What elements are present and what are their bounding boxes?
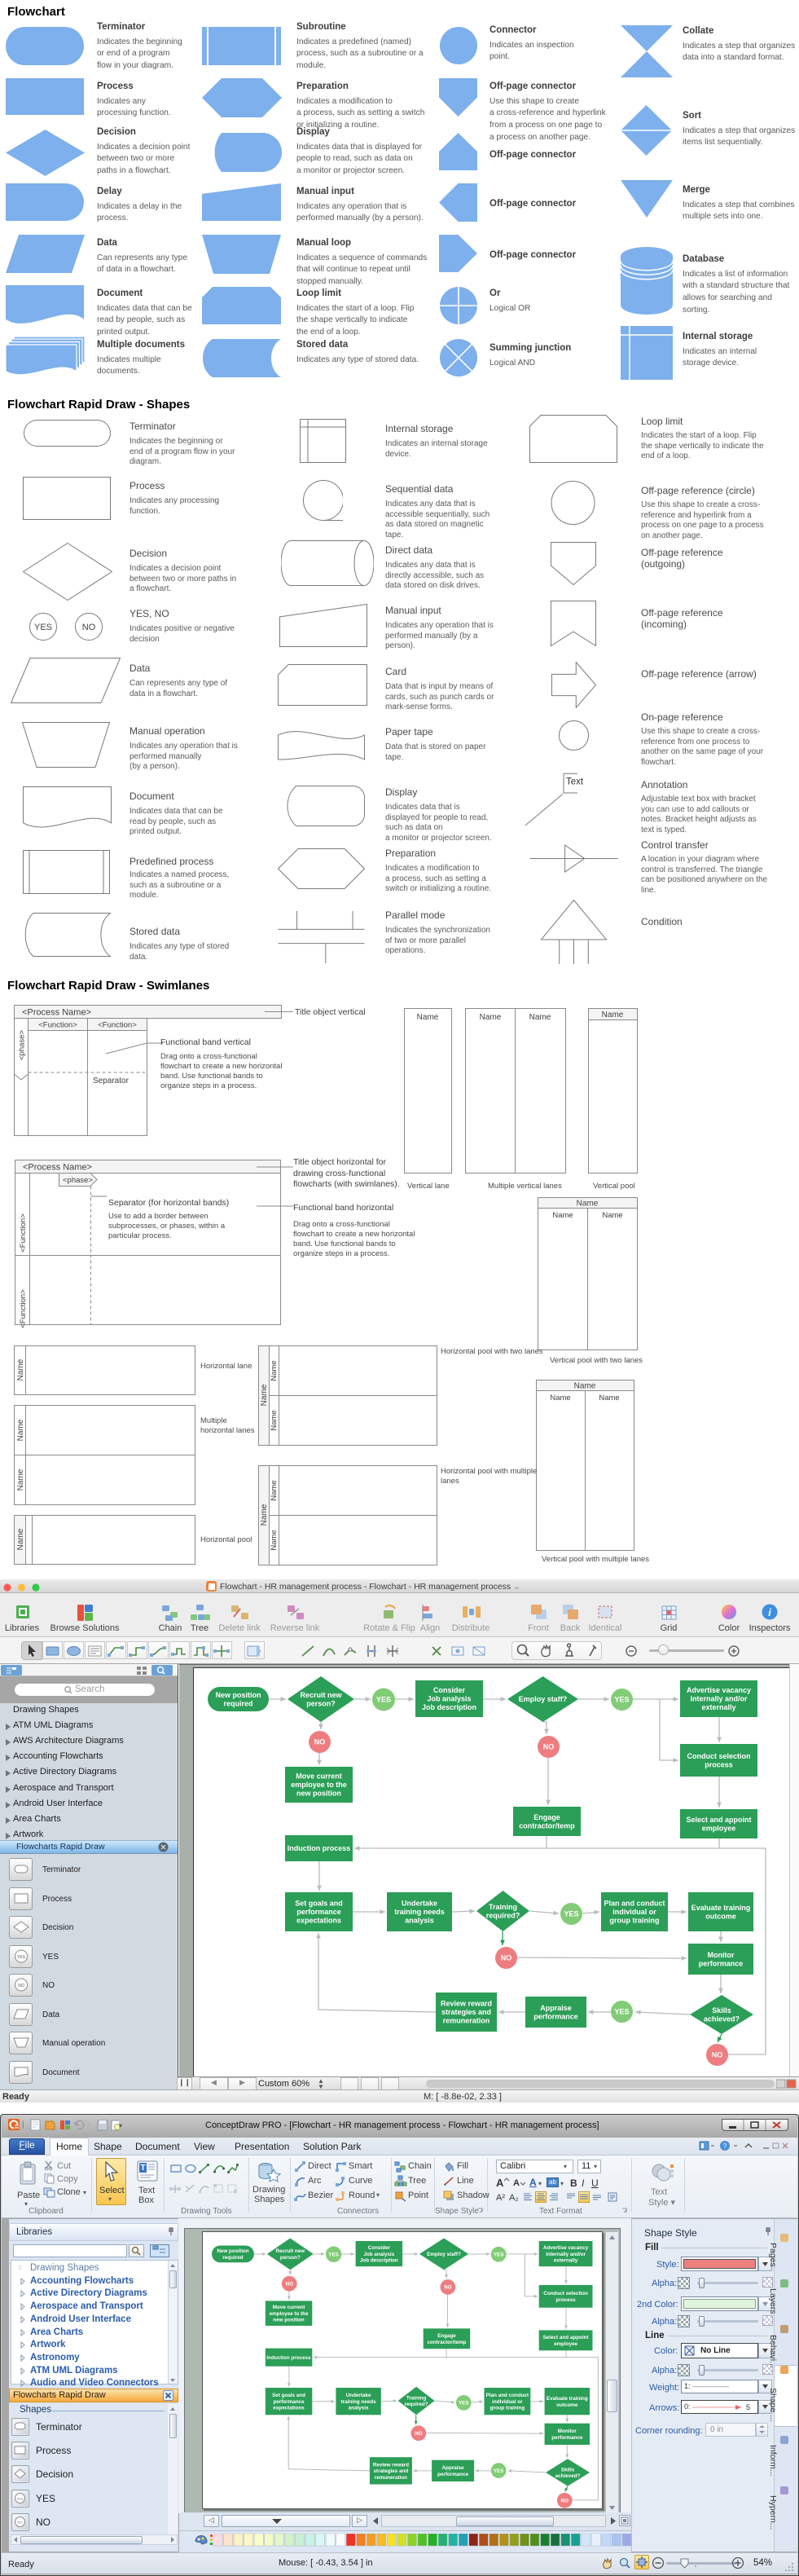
svg-text:Name: Name [480, 1013, 502, 1022]
svg-text:process: process [556, 2297, 577, 2303]
svg-text:New position: New position [217, 2248, 248, 2254]
svg-text:<Process Name>: <Process Name> [22, 1008, 91, 1018]
svg-text:training needs: training needs [341, 2399, 377, 2405]
svg-text:contractor/temp: contractor/temp [519, 1821, 575, 1830]
svg-text:strategies and: strategies and [441, 2008, 491, 2016]
svg-text:person?: person? [280, 2255, 301, 2261]
svg-text:Move current: Move current [296, 1772, 342, 1781]
svg-text:NO: NO [314, 1738, 326, 1746]
svg-text:training needs: training needs [394, 1908, 445, 1916]
svg-text:NO: NO [712, 2051, 723, 2059]
svg-text:remuneration: remuneration [375, 2475, 407, 2481]
svg-text:Engage: Engage [437, 2333, 456, 2339]
svg-text:T: T [140, 2164, 145, 2173]
svg-text:expectations: expectations [273, 2406, 305, 2411]
svg-text:performance: performance [437, 2472, 469, 2477]
svg-text:Recruit new: Recruit new [275, 2248, 305, 2254]
svg-text:Job analysis: Job analysis [427, 1695, 471, 1703]
svg-text:NO: NO [444, 2285, 452, 2291]
svg-text:YES: YES [17, 1955, 26, 1960]
svg-text:Plan and conduct: Plan and conduct [486, 2393, 529, 2398]
svg-text:Evaluate training: Evaluate training [691, 1904, 751, 1912]
svg-text:Job description: Job description [360, 2258, 398, 2264]
svg-text:YES: YES [494, 2468, 504, 2474]
svg-text:Name: Name [260, 1384, 269, 1406]
svg-text:contractor/temp: contractor/temp [427, 2340, 466, 2345]
svg-text:Plan and conduct: Plan and conduct [604, 1900, 665, 1908]
svg-text:Name: Name [602, 1211, 622, 1220]
svg-text:remuneration: remuneration [443, 2017, 490, 2025]
svg-text:Consider: Consider [433, 1686, 466, 1694]
svg-text:<phase>: <phase> [18, 1030, 27, 1060]
svg-text:Name: Name [16, 1419, 25, 1441]
svg-text:externally: externally [701, 1703, 735, 1711]
svg-text:Name: Name [16, 1528, 25, 1550]
svg-text:individual or: individual or [492, 2399, 523, 2405]
svg-text:Induction process: Induction process [288, 1844, 351, 1852]
svg-text:<Function>: <Function> [19, 1213, 28, 1253]
svg-text:Advertise vacancy: Advertise vacancy [543, 2245, 589, 2251]
svg-text:achieved?: achieved? [704, 2015, 740, 2023]
svg-text:Advertise vacancy: Advertise vacancy [687, 1686, 751, 1694]
svg-text:externally: externally [554, 2258, 578, 2264]
svg-text:Skills: Skills [712, 2006, 731, 2015]
svg-text:YES: YES [459, 2401, 469, 2406]
svg-text:Monitor: Monitor [708, 1951, 735, 1959]
svg-text:YES: YES [16, 2496, 23, 2500]
svg-text:Name: Name [574, 1382, 596, 1391]
svg-text:employee: employee [554, 2341, 578, 2347]
svg-text:YES: YES [328, 2252, 339, 2258]
svg-text:Name: Name [16, 1358, 25, 1380]
svg-text:Skills: Skills [561, 2467, 575, 2473]
svg-text:NO: NO [543, 1743, 555, 1751]
svg-text:Select and appoint: Select and appoint [543, 2335, 590, 2340]
svg-text:New position: New position [216, 1691, 261, 1699]
svg-text:employee to the: employee to the [270, 2311, 309, 2317]
svg-text:required?: required? [405, 2402, 428, 2407]
svg-text:Undertake: Undertake [402, 1900, 437, 1908]
svg-text:Set goals and: Set goals and [295, 1900, 343, 1908]
svg-text:Name: Name [599, 1394, 619, 1402]
svg-text:Employ staff?: Employ staff? [427, 2252, 461, 2257]
svg-text:?: ? [723, 2142, 727, 2150]
svg-text:Induction process: Induction process [266, 2355, 311, 2361]
svg-text:YES: YES [34, 623, 52, 632]
svg-text:Name: Name [270, 1360, 279, 1380]
svg-text:YES: YES [614, 1696, 629, 1704]
svg-text:performance: performance [296, 1908, 341, 1916]
svg-text:Employ staff?: Employ staff? [519, 1695, 568, 1703]
svg-text:Review reward: Review reward [441, 2000, 492, 2008]
svg-text:group training: group training [490, 2406, 525, 2411]
svg-text:NO: NO [82, 623, 96, 632]
svg-text:Name: Name [270, 1480, 279, 1500]
svg-text:Job analysis: Job analysis [363, 2252, 394, 2257]
svg-text:Training: Training [406, 2395, 427, 2401]
svg-text:outcome: outcome [556, 2402, 578, 2408]
svg-text:Name: Name [550, 1394, 570, 1402]
svg-text:Text: Text [566, 777, 584, 787]
svg-text:Select and appoint: Select and appoint [686, 1816, 751, 1824]
svg-text:Appraise: Appraise [442, 2465, 464, 2471]
svg-text:YES: YES [614, 2008, 629, 2016]
svg-text:YES: YES [564, 1910, 578, 1918]
svg-text:achieved?: achieved? [555, 2473, 581, 2479]
svg-text:Name: Name [529, 1013, 551, 1022]
svg-text:employee: employee [702, 1824, 736, 1832]
svg-text:required: required [222, 2255, 243, 2261]
svg-text:Name: Name [270, 1530, 279, 1550]
svg-text:performance: performance [699, 1959, 744, 1967]
svg-text:NO: NO [501, 1954, 512, 1962]
svg-text:expectations: expectations [296, 1917, 341, 1925]
svg-text:Consider: Consider [368, 2245, 391, 2251]
svg-text:person?: person? [306, 1699, 336, 1707]
svg-text:<Function>: <Function> [19, 1289, 28, 1328]
svg-text:5: 5 [746, 2403, 750, 2411]
svg-text:new position: new position [273, 2318, 305, 2323]
svg-text:employee to the: employee to the [291, 1781, 347, 1789]
svg-text:performance: performance [533, 2012, 578, 2020]
svg-text:<Function>: <Function> [98, 1021, 137, 1030]
svg-text:internally and/or: internally and/or [546, 2252, 586, 2257]
svg-text:Evaluate training: Evaluate training [547, 2396, 588, 2402]
svg-text:Engage: Engage [533, 1813, 560, 1821]
svg-text:Name: Name [16, 1469, 25, 1491]
svg-text:Monitor: Monitor [558, 2428, 577, 2434]
svg-text:NO: NO [18, 2520, 23, 2524]
svg-text:strategies and: strategies and [374, 2468, 409, 2474]
svg-text:Name: Name [270, 1410, 279, 1430]
svg-text:Conduct selection: Conduct selection [543, 2291, 588, 2296]
svg-text:YES: YES [376, 1696, 391, 1704]
svg-text:i: i [768, 1606, 771, 1618]
svg-text:Job description: Job description [422, 1703, 476, 1711]
svg-text:Name: Name [602, 1011, 624, 1019]
svg-text:outcome: outcome [705, 1912, 736, 1920]
svg-text:performance: performance [273, 2399, 305, 2405]
svg-text:Name: Name [577, 1200, 599, 1209]
svg-text:Appraise: Appraise [540, 2004, 572, 2012]
svg-text:Name: Name [552, 1211, 573, 1220]
svg-text:Undertake: Undertake [346, 2393, 371, 2398]
svg-text:analysis: analysis [349, 2406, 369, 2411]
svg-text:<phase>: <phase> [63, 1176, 93, 1185]
svg-text:new position: new position [296, 1790, 341, 1798]
svg-text:process: process [705, 1760, 733, 1768]
svg-text:analysis: analysis [405, 1917, 434, 1925]
svg-text:<Function>: <Function> [38, 1021, 77, 1030]
svg-text:group training: group training [610, 1917, 660, 1925]
svg-text:Review reward: Review reward [373, 2462, 409, 2468]
svg-text:NO: NO [561, 2499, 569, 2504]
svg-text:YES: YES [494, 2252, 504, 2258]
svg-text:Separator: Separator [93, 1077, 130, 1085]
svg-text:NO: NO [286, 2282, 294, 2288]
svg-text:Name: Name [260, 1504, 269, 1526]
svg-text:Set goals and: Set goals and [272, 2393, 305, 2398]
svg-text:NO: NO [415, 2431, 423, 2437]
svg-text:required?: required? [486, 1911, 520, 1919]
svg-text:Training: Training [489, 1903, 517, 1911]
svg-text:NO: NO [18, 1984, 24, 1988]
svg-text:Name: Name [417, 1013, 439, 1022]
svg-text:Move current: Move current [273, 2305, 305, 2310]
svg-text:Conduct selection: Conduct selection [687, 1752, 750, 1760]
svg-text:<Process Name>: <Process Name> [23, 1163, 92, 1173]
svg-text:required: required [223, 1699, 252, 1707]
svg-text:Recruit new: Recruit new [300, 1691, 342, 1699]
svg-text:performance: performance [551, 2435, 583, 2441]
svg-text:individual or: individual or [612, 1908, 656, 1916]
svg-text:internally and/or: internally and/or [690, 1695, 748, 1703]
